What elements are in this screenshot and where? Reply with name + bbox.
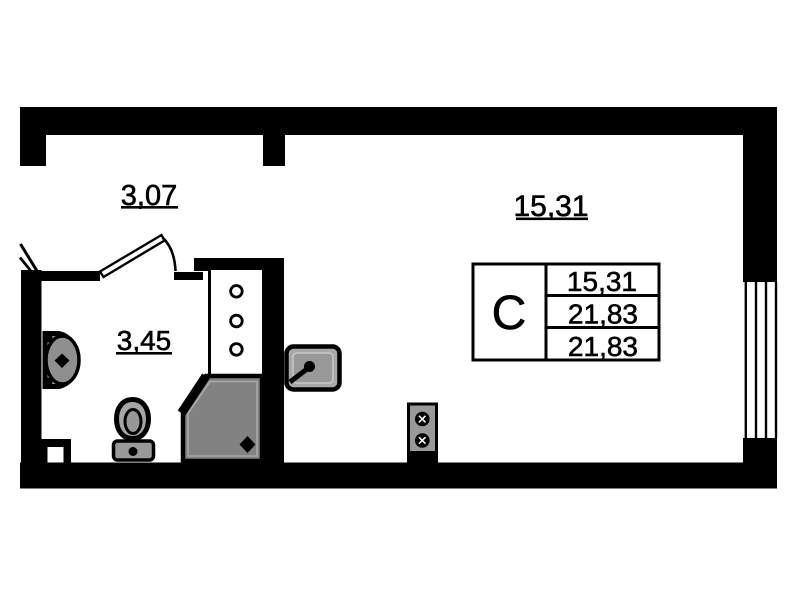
svg-text:21,83: 21,83: [568, 331, 638, 362]
svg-text:21,83: 21,83: [568, 299, 638, 330]
svg-text:C: C: [492, 287, 527, 340]
svg-text:15,31: 15,31: [567, 266, 637, 297]
svg-text:3,45: 3,45: [117, 325, 172, 356]
